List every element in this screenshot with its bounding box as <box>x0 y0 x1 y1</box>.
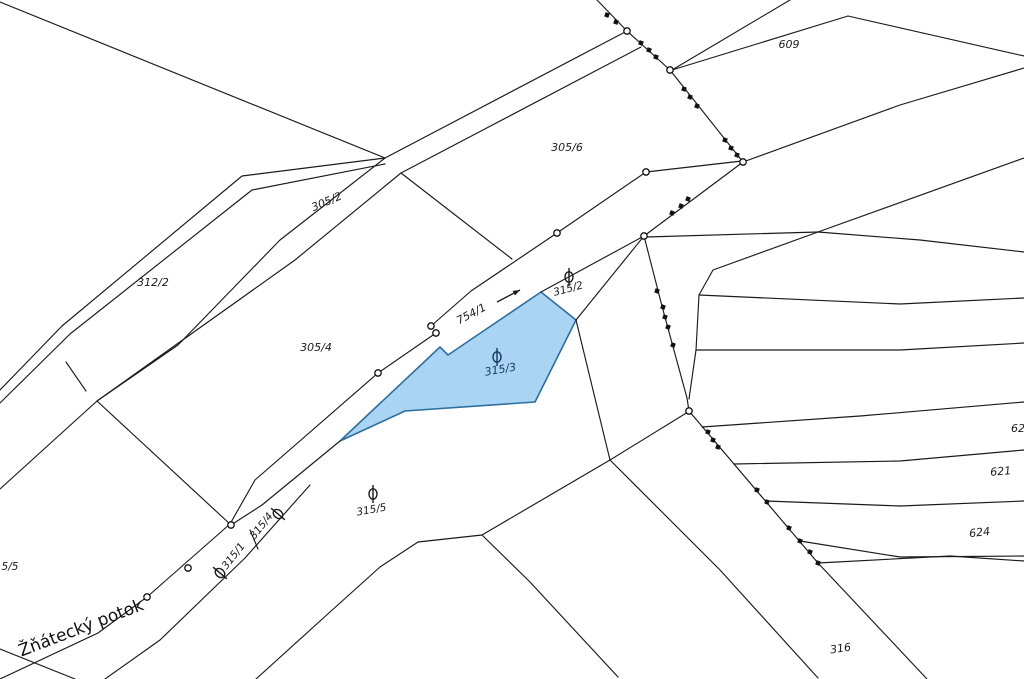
boundary-marker-dot <box>669 210 675 216</box>
vertex-circle <box>740 159 746 165</box>
vertex-circle <box>554 230 560 236</box>
arrow-head-icon <box>513 290 520 296</box>
parcel-label-305-2: 305/2 <box>310 190 344 214</box>
boundary-line <box>0 158 385 390</box>
boundary-marker-dot <box>694 103 700 109</box>
vertex-circle <box>375 370 381 376</box>
vertex-circle <box>144 594 150 600</box>
vertex-circle <box>667 67 673 73</box>
boundary-line <box>610 460 818 678</box>
boundary-marker-dot <box>807 549 813 555</box>
boundary-line <box>646 158 1024 237</box>
boundary-line <box>597 0 743 162</box>
boundary-line <box>105 485 310 679</box>
vertex-circle <box>185 565 191 571</box>
boundary-line <box>766 501 1024 506</box>
boundary-line <box>97 401 231 525</box>
parcel-label-609: 609 <box>779 38 800 51</box>
boundary-line <box>0 31 627 489</box>
boundary-line <box>699 295 1024 304</box>
parcel-label-315-1: 315/1 <box>220 541 248 572</box>
boundary-marker-dot <box>678 203 684 209</box>
boundary-line <box>702 402 1024 427</box>
vertex-circle <box>624 28 630 34</box>
boundary-line <box>818 563 927 679</box>
orchard-symbol-icon <box>369 485 377 503</box>
boundary-marker-dot <box>715 444 721 450</box>
boundary-line <box>672 0 790 70</box>
vertex-circle <box>686 408 692 414</box>
vertex-circle <box>428 323 434 329</box>
boundary-line <box>818 556 1024 563</box>
boundary-marker-dot <box>705 429 711 435</box>
boundary-marker-dot <box>662 314 668 320</box>
parcel-label-305-6: 305/6 <box>551 141 583 154</box>
vertex-circle <box>228 522 234 528</box>
boundary-line <box>696 343 1024 350</box>
parcel-label-754-1: 754/1 <box>454 301 488 327</box>
boundary-line <box>541 236 644 292</box>
vertex-circle <box>433 330 439 336</box>
parcel-label-315-4: 315/4 <box>248 511 276 542</box>
boundary-line <box>576 320 610 460</box>
boundary-line <box>431 161 742 326</box>
parcel-label-312-2: 312/2 <box>137 276 169 289</box>
boundary-line <box>66 362 86 391</box>
parcel-label-316: 316 <box>829 641 852 657</box>
boundary-line <box>576 236 644 320</box>
parcel-label-624: 624 <box>968 525 990 540</box>
vertex-circle <box>643 169 649 175</box>
boundary-marker-dot <box>660 304 666 310</box>
stream-label-teck-potok: Žňátecký potok <box>15 593 146 661</box>
boundary-marker-dot <box>687 94 693 100</box>
boundary-marker-dot <box>670 342 676 348</box>
parcel-label-315-2: 315/2 <box>552 279 585 299</box>
parcel-label-621: 621 <box>990 464 1012 479</box>
boundary-line <box>672 16 1024 70</box>
map-canvas[interactable]: 305/6305/2312/2305/4754/1315/2315/3315/5… <box>0 0 1024 679</box>
parcel-label-305-4: 305/4 <box>300 341 332 354</box>
boundary-line <box>644 236 689 411</box>
boundary-line <box>256 412 688 679</box>
parcel-label-315-5: 315/5 <box>356 501 388 518</box>
boundary-line <box>0 2 385 158</box>
boundary-line <box>230 333 436 524</box>
cadastral-map: 305/6305/2312/2305/4754/1315/2315/3315/5… <box>0 0 1024 679</box>
boundary-line <box>644 162 743 236</box>
parcel-label-5-5: 5/5 <box>2 561 19 573</box>
boundary-line <box>743 68 1024 162</box>
boundary-marker-dot <box>613 19 619 25</box>
boundary-line <box>800 541 1024 557</box>
boundary-line <box>482 535 618 677</box>
boundary-line <box>689 232 818 399</box>
vertex-circle <box>641 233 647 239</box>
boundary-marker-dot <box>665 324 671 330</box>
parcel-label-62: 62 <box>1011 422 1024 435</box>
boundary-line <box>401 173 512 259</box>
boundary-line <box>818 232 1024 252</box>
boundary-line <box>734 450 1024 464</box>
